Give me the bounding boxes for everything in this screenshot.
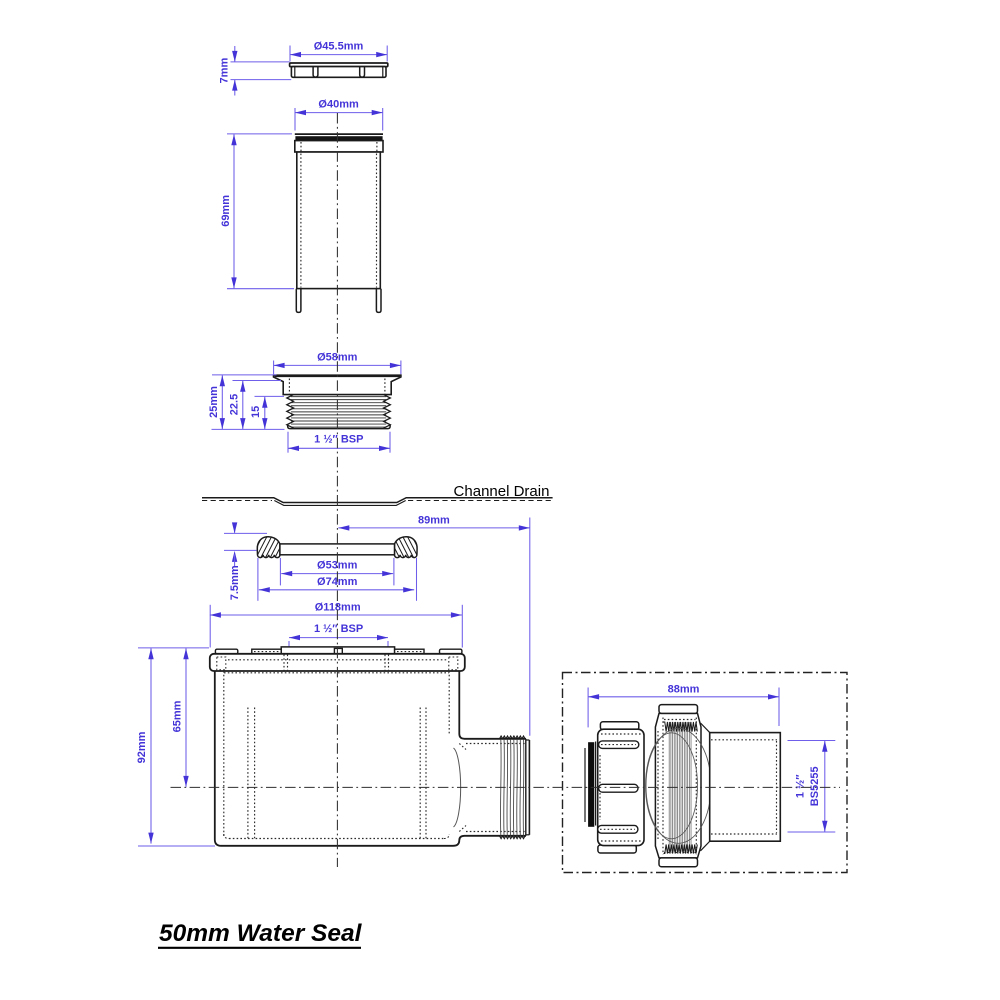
svg-text:1 ½″ BSP: 1 ½″ BSP <box>314 623 363 635</box>
svg-text:Ø45.5mm: Ø45.5mm <box>314 40 364 52</box>
svg-text:1 ½″ BSP: 1 ½″ BSP <box>314 434 363 446</box>
svg-text:92mm: 92mm <box>136 731 148 763</box>
svg-text:BS5255: BS5255 <box>809 766 821 806</box>
svg-text:7.5mm: 7.5mm <box>229 565 241 600</box>
svg-text:Ø40mm: Ø40mm <box>318 98 359 110</box>
svg-text:7mm: 7mm <box>219 58 231 84</box>
svg-text:65mm: 65mm <box>171 700 183 732</box>
svg-text:22.5: 22.5 <box>228 394 240 415</box>
svg-text:69mm: 69mm <box>220 195 232 227</box>
svg-text:25mm: 25mm <box>208 386 220 418</box>
svg-text:88mm: 88mm <box>668 684 700 696</box>
svg-text:15: 15 <box>250 406 262 418</box>
svg-text:1 ½″: 1 ½″ <box>795 774 807 798</box>
svg-text:89mm: 89mm <box>418 514 450 526</box>
svg-text:50mm Water Seal: 50mm Water Seal <box>159 920 363 947</box>
